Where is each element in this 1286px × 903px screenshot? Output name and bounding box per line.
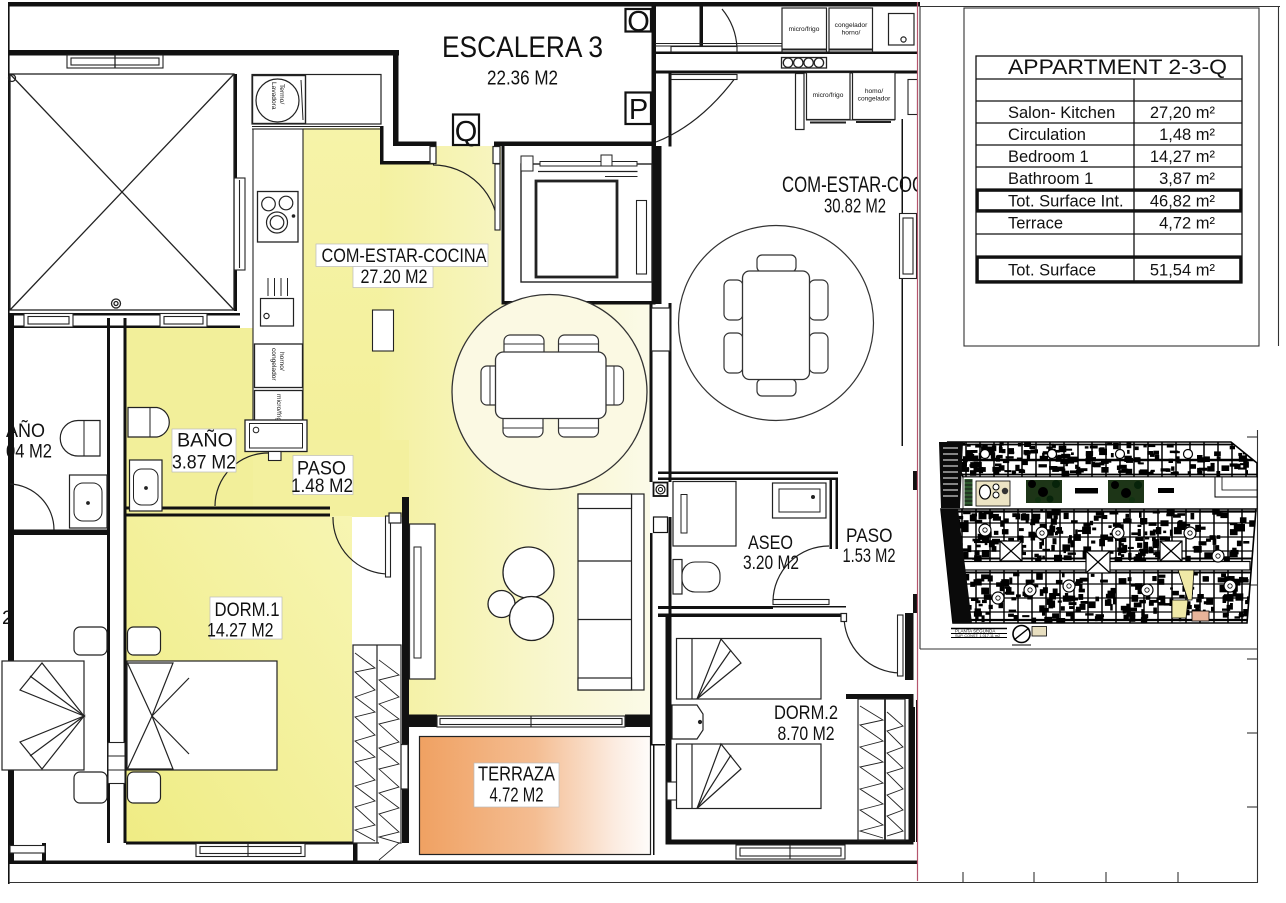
svg-text:Q: Q [455, 116, 478, 148]
svg-text:horno/: horno/ [278, 352, 285, 371]
svg-text:DORM.1: DORM.1 [215, 599, 280, 621]
svg-text:O: O [627, 6, 650, 38]
svg-text:Tot. Surface Int.: Tot. Surface Int. [1008, 193, 1124, 211]
svg-text:4,72 m²: 4,72 m² [1159, 215, 1215, 233]
svg-text:homo/: homo/ [865, 88, 883, 95]
svg-text:3.20 M2: 3.20 M2 [743, 553, 799, 574]
svg-text:micro/frigo: micro/frigo [813, 92, 844, 99]
svg-text:Tot. Surface: Tot. Surface [1008, 262, 1096, 280]
svg-text:14.27 M2: 14.27 M2 [207, 620, 274, 642]
svg-text:DORM.2: DORM.2 [774, 702, 838, 724]
svg-text:horno/: horno/ [842, 30, 861, 37]
svg-text:Lavadora: Lavadora [270, 82, 277, 110]
svg-text:1,48 m²: 1,48 m² [1159, 126, 1215, 144]
svg-text:30.82 M2: 30.82 M2 [824, 196, 886, 218]
svg-text:Termo/: Termo/ [278, 84, 285, 104]
svg-text:BAÑO: BAÑO [177, 430, 233, 452]
svg-text:04 M2: 04 M2 [6, 442, 52, 463]
svg-text:3.87 M2: 3.87 M2 [172, 453, 236, 474]
svg-text:congelador: congelador [270, 348, 277, 381]
svg-text:Circulation: Circulation [1008, 126, 1086, 144]
svg-text:SUP. CONST: 1.017,11 m2: SUP. CONST: 1.017,11 m2 [955, 634, 1000, 638]
svg-text:congelador: congelador [835, 22, 868, 29]
svg-text:congelador: congelador [858, 96, 891, 103]
svg-text:46,82 m²: 46,82 m² [1150, 193, 1216, 211]
svg-text:Bathroom 1: Bathroom 1 [1008, 170, 1093, 188]
svg-text:micro/frigo: micro/frigo [789, 26, 820, 33]
svg-text:Salon- Kitchen: Salon- Kitchen [1008, 104, 1115, 122]
svg-text:P: P [629, 94, 648, 126]
svg-text:51,54 m²: 51,54 m² [1150, 262, 1216, 280]
svg-text:COM-ESTAR-COCINA: COM-ESTAR-COCINA [322, 245, 487, 267]
svg-text:APPARTMENT 2-3-Q: APPARTMENT 2-3-Q [1008, 56, 1227, 79]
svg-text:22.36 M2: 22.36 M2 [487, 67, 558, 90]
svg-text:4.72 M2: 4.72 M2 [490, 785, 544, 807]
svg-text:14,27 m²: 14,27 m² [1150, 148, 1216, 166]
svg-text:Terrace: Terrace [1008, 215, 1063, 233]
svg-text:3,87 m²: 3,87 m² [1159, 170, 1215, 188]
svg-text:2: 2 [2, 607, 13, 629]
svg-text:27,20 m²: 27,20 m² [1150, 104, 1216, 122]
svg-text:PASO: PASO [846, 525, 893, 547]
svg-text:ESCALERA 3: ESCALERA 3 [442, 31, 603, 64]
svg-text:TERRAZA: TERRAZA [478, 764, 556, 786]
svg-text:AÑO: AÑO [6, 420, 45, 442]
svg-text:Bedroom 1: Bedroom 1 [1008, 148, 1089, 166]
svg-text:1.53 M2: 1.53 M2 [843, 545, 896, 567]
svg-text:PLANTA SEGUNDA: PLANTA SEGUNDA [955, 629, 995, 634]
svg-text:8.70 M2: 8.70 M2 [778, 723, 835, 745]
svg-text:27.20 M2: 27.20 M2 [361, 266, 428, 288]
svg-text:1.48 M2: 1.48 M2 [291, 475, 353, 497]
svg-text:ASEO: ASEO [748, 533, 793, 554]
